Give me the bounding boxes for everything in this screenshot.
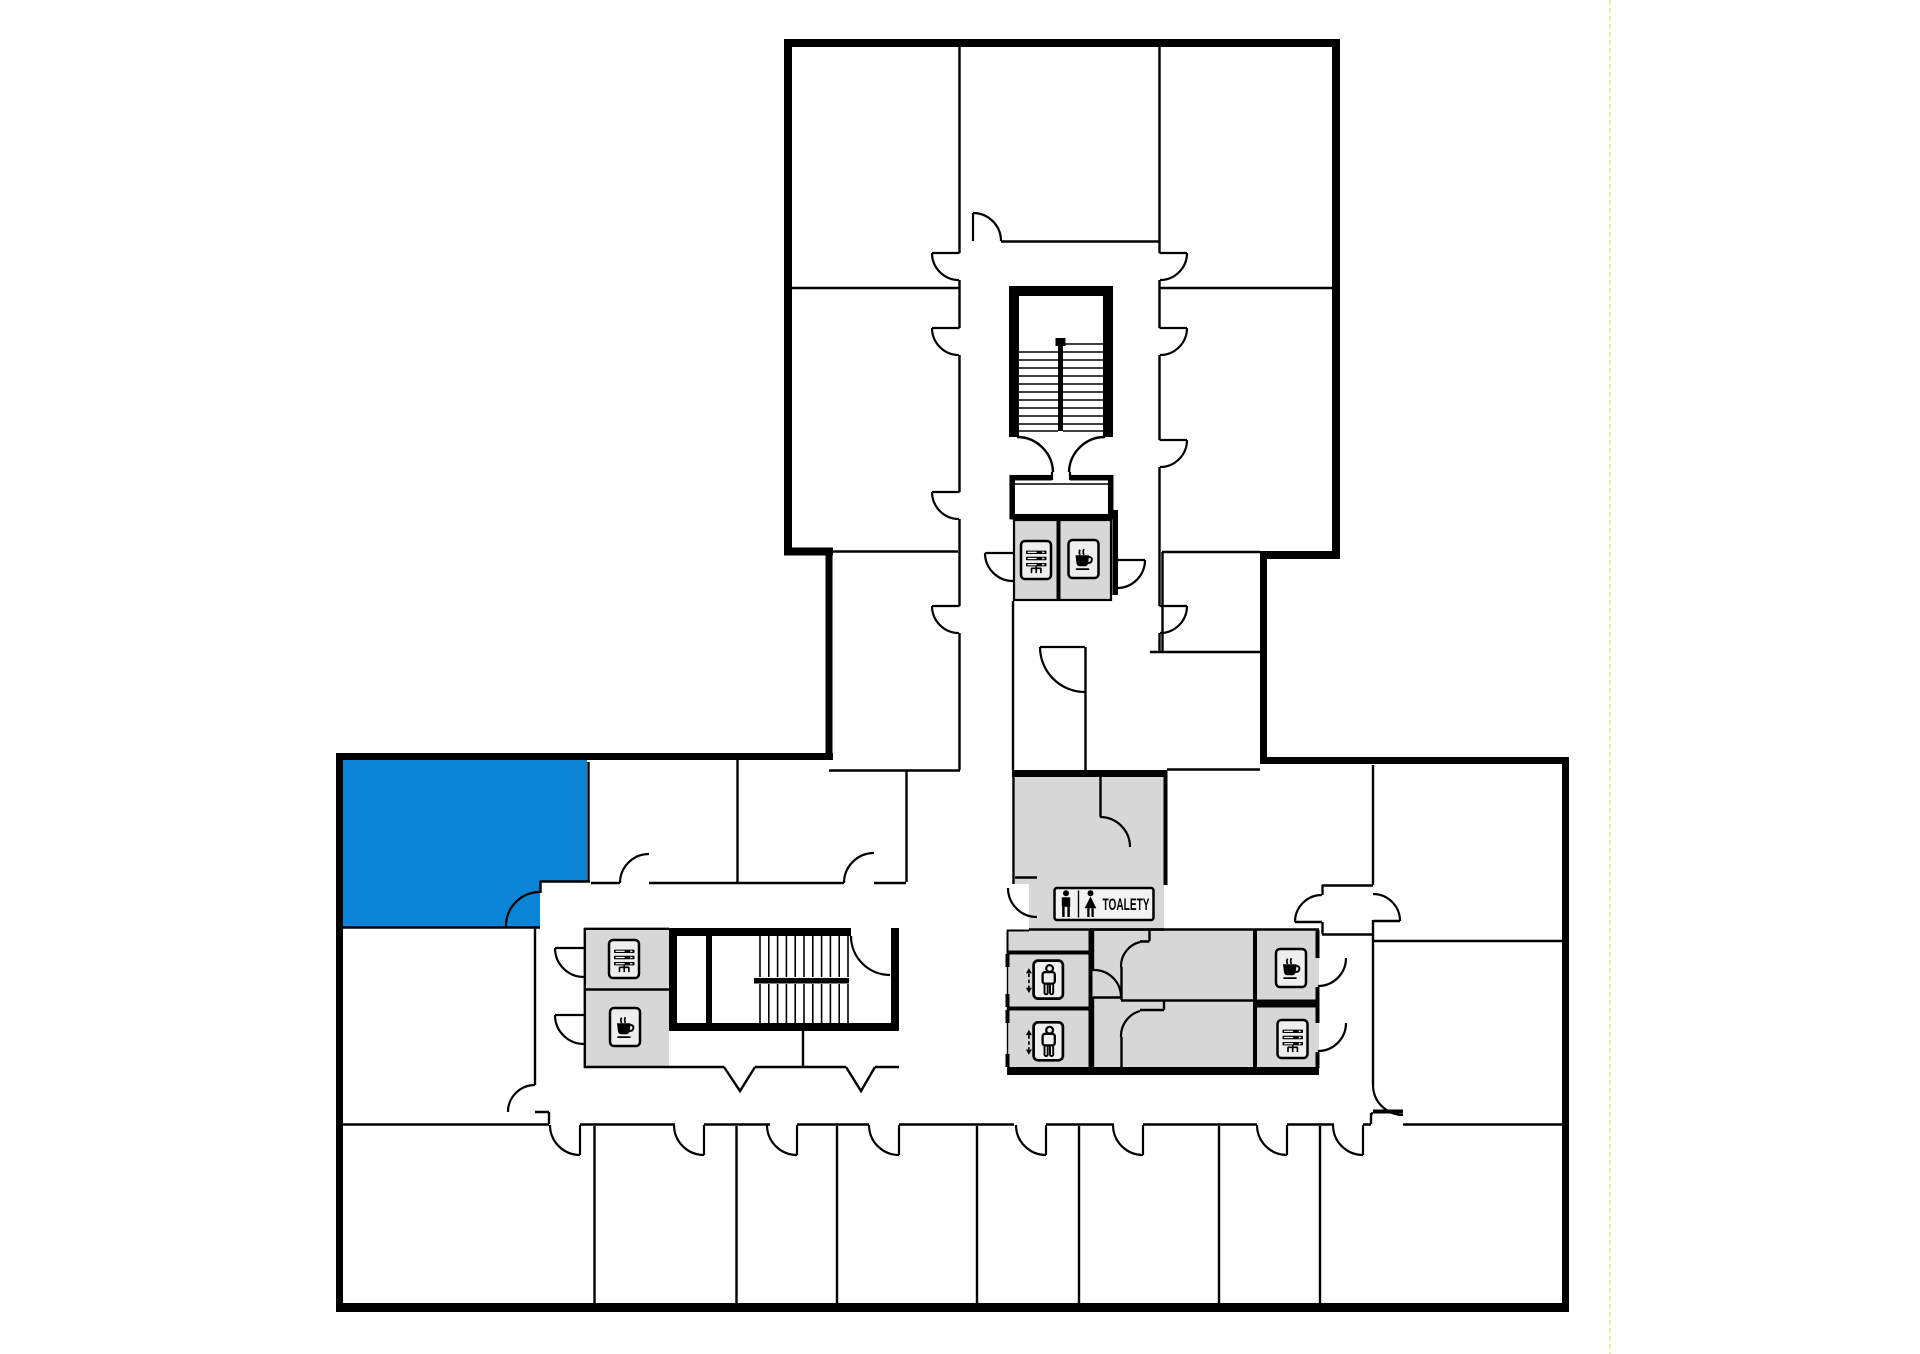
svg-text:TOALETY: TOALETY: [1103, 896, 1150, 914]
